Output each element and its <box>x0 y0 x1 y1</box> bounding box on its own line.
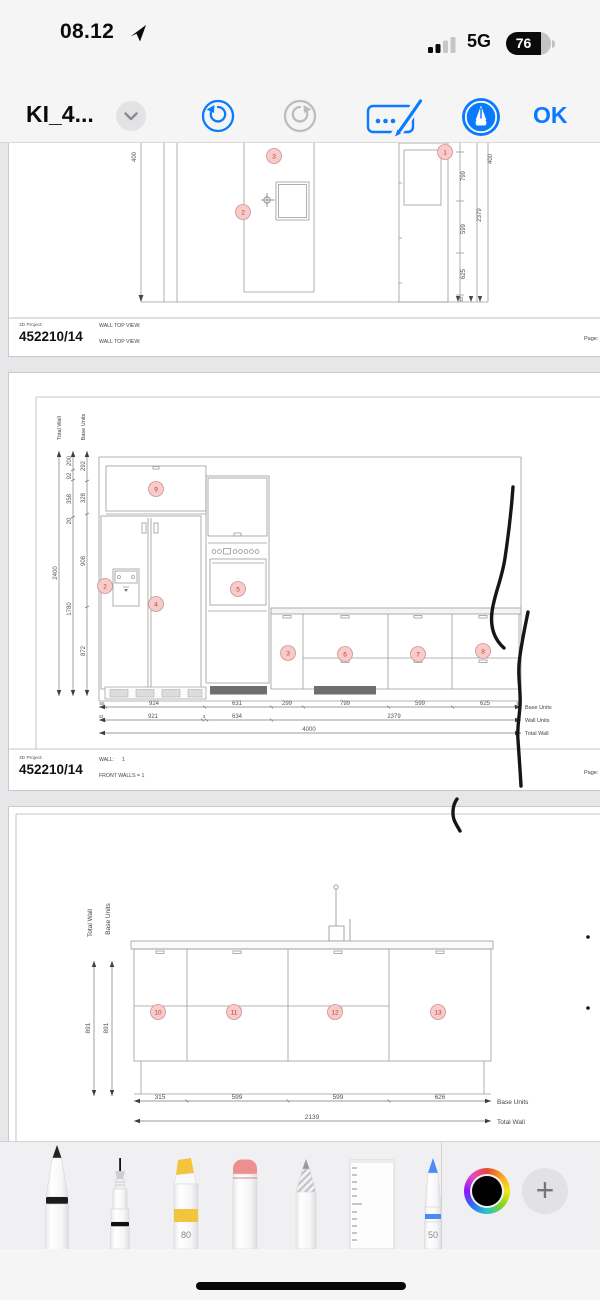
dim-label: 55 <box>99 701 105 706</box>
svg-text:7: 7 <box>416 651 420 658</box>
axis-label: Base Units <box>81 413 87 440</box>
dim-label: 358 <box>67 493 73 504</box>
faucet-symbol <box>329 885 350 941</box>
dim-label: 2379 <box>477 208 483 222</box>
dim-label: 2400 <box>53 566 59 580</box>
document-title[interactable]: KI_4... <box>26 101 94 128</box>
svg-text:1: 1 <box>122 757 125 763</box>
svg-text:11: 11 <box>231 1009 238 1016</box>
axis-label: Total Wall <box>87 908 94 936</box>
undo-button[interactable] <box>200 98 236 134</box>
location-arrow-icon <box>129 24 149 44</box>
dim-label: 4000 <box>302 727 316 733</box>
svg-text:13: 13 <box>434 1009 442 1016</box>
island-drawing: Total Wall Base Units 891 891 10 11 12 1… <box>9 807 600 1144</box>
svg-text:4: 4 <box>154 601 158 608</box>
dim-label: 92 <box>67 472 73 479</box>
item-badge-12: 12 <box>328 1005 343 1020</box>
item-badge-13: 13 <box>431 1005 446 1020</box>
front-wall-drawing: Total Wall Base Units 2400 200 92 358 20… <box>9 373 600 790</box>
dim-label: 200 <box>67 455 73 466</box>
axis-label: Base Units <box>525 705 552 711</box>
dim-label: 599 <box>333 1094 344 1101</box>
cellular-signal-icon <box>428 36 462 54</box>
dim-label: 328 <box>81 492 87 503</box>
markup-button[interactable] <box>364 95 426 139</box>
pencil-tool[interactable] <box>288 1158 324 1249</box>
eraser-tool[interactable] <box>227 1158 263 1249</box>
item-badge-2: 2 <box>236 205 251 220</box>
selected-color-swatch <box>472 1176 502 1206</box>
plus-icon: + <box>522 1172 568 1209</box>
dim-label: 634 <box>232 714 243 720</box>
axis-label: Base Units <box>105 903 112 935</box>
dim-label: 292 <box>81 460 87 471</box>
ruler-tool[interactable] <box>348 1159 396 1249</box>
redo-button[interactable] <box>282 98 318 134</box>
axis-label: Total Wall <box>497 1119 525 1126</box>
title-block: 3D Project: 452210/14 WALL TOP VIEW: WAL… <box>19 322 600 345</box>
ok-button[interactable]: OK <box>533 102 568 129</box>
svg-text:2: 2 <box>241 209 245 216</box>
plinth-vent <box>314 686 376 695</box>
home-indicator[interactable] <box>196 1282 406 1290</box>
dim-label: 52 <box>459 296 464 302</box>
svg-text:WALL TOP VIEW:: WALL TOP VIEW: <box>99 323 141 329</box>
dim-label: 625 <box>461 268 467 279</box>
item-badge-1: 1 <box>438 145 453 160</box>
dim-label: 400 <box>132 151 138 162</box>
dim-label: 1780 <box>67 602 73 616</box>
dim-label: 872 <box>81 645 87 656</box>
highlighter-tool[interactable]: 80 <box>166 1157 206 1249</box>
svg-text:3: 3 <box>286 650 290 657</box>
dim-label: 891 <box>85 1022 92 1033</box>
item-badge-11: 11 <box>227 1005 242 1020</box>
blue-pen-size-label: 50 <box>428 1230 438 1240</box>
toolbar-divider <box>441 1142 442 1249</box>
iphone-screen: 400 799 599 625 52 2379 400 3 2 1 <box>0 0 600 1300</box>
bottom-safe-area <box>0 1249 600 1300</box>
top-chrome: 08.12 5G 76 KI_4... <box>0 0 600 143</box>
svg-text:10: 10 <box>154 1009 162 1016</box>
battery-percent: 76 <box>506 35 541 51</box>
dim-label: 599 <box>232 1094 243 1101</box>
svg-text:5: 5 <box>236 586 240 593</box>
faucet-symbol <box>261 193 275 207</box>
pdf-page-7[interactable]: 400 799 599 625 52 2379 400 3 2 1 <box>8 143 600 357</box>
fineliner-tool[interactable] <box>101 1157 139 1249</box>
wall-top-view-drawing: 400 799 599 625 52 2379 400 3 2 1 <box>9 143 600 356</box>
dim-label: 299 <box>282 701 293 707</box>
dim-label: 2379 <box>387 714 401 720</box>
item-badge-2: 2 <box>98 579 113 594</box>
dim-label: 42 <box>98 714 104 719</box>
axis-label: Total Wall <box>525 731 549 737</box>
dim-label: 631 <box>232 701 243 707</box>
status-clock: 08.12 <box>60 20 114 44</box>
item-badge-3: 3 <box>267 149 282 164</box>
item-badge-9: 9 <box>149 482 164 497</box>
svg-text:9: 9 <box>154 486 158 493</box>
svg-text:12: 12 <box>331 1009 339 1016</box>
item-badge-5: 5 <box>231 582 246 597</box>
dim-label: 625 <box>480 701 491 707</box>
svg-text:3D Project:: 3D Project: <box>19 755 43 761</box>
svg-text:8: 8 <box>481 648 485 655</box>
add-tool-button[interactable]: + <box>522 1168 568 1214</box>
blue-pen-tool[interactable]: 50 <box>418 1157 441 1249</box>
svg-text:3D Project:: 3D Project: <box>19 322 43 328</box>
battery-nub <box>552 40 555 48</box>
pen-tool[interactable] <box>37 1144 77 1251</box>
oven-controls <box>212 549 259 555</box>
dim-label: 52 <box>516 701 522 706</box>
axis-label: Total Wall <box>57 416 63 440</box>
dim-label: 799 <box>340 701 351 707</box>
svg-text:1: 1 <box>443 149 447 156</box>
item-badge-3: 3 <box>281 646 296 661</box>
dim-label: 2139 <box>305 1114 320 1121</box>
svg-text:FRONT WALLS = 1: FRONT WALLS = 1 <box>99 773 145 779</box>
dim-label: 20 <box>67 517 73 524</box>
item-badge-6: 6 <box>338 647 353 662</box>
dim-label: 315 <box>155 1094 166 1101</box>
svg-text:Page: 8: Page: 8 <box>584 770 600 776</box>
svg-text:452210/14: 452210/14 <box>19 329 83 344</box>
svg-text:452210/14: 452210/14 <box>19 762 83 777</box>
pdf-page-9[interactable]: Total Wall Base Units 891 891 10 11 12 1… <box>8 806 600 1144</box>
svg-text:2: 2 <box>103 583 107 590</box>
network-type-label: 5G <box>467 31 491 52</box>
svg-text:WALL TOP VIEW:: WALL TOP VIEW: <box>99 339 141 345</box>
dim-label: 908 <box>81 555 87 566</box>
dim-label: 599 <box>461 223 467 234</box>
title-menu-button[interactable] <box>116 101 146 131</box>
svg-text:Page: 7: Page: 7 <box>584 336 600 342</box>
axis-label: Base Units <box>497 1099 529 1106</box>
dim-label: 3 <box>203 714 206 719</box>
dim-label: 924 <box>149 701 160 707</box>
dim-label: 626 <box>435 1094 446 1101</box>
dim-label: 891 <box>103 1022 110 1033</box>
dim-label: 799 <box>461 170 467 181</box>
markup-mode-toggle[interactable] <box>461 97 501 137</box>
pdf-page-8[interactable]: Total Wall Base Units 2400 200 92 358 20… <box>8 372 600 791</box>
markup-toolbar: 80 <box>0 1141 600 1250</box>
item-badge-4: 4 <box>149 597 164 612</box>
title-block: 3D Project: 452210/14 WALL: 1 FRONT WALL… <box>19 755 600 779</box>
item-badge-10: 10 <box>151 1005 166 1020</box>
axis-label: Wall Units <box>525 718 550 724</box>
dim-label: 921 <box>148 714 159 720</box>
battery-indicator: 76 <box>506 32 551 55</box>
plinth-vent <box>210 686 267 695</box>
svg-text:3: 3 <box>272 153 276 160</box>
dim-label: 400 <box>488 153 494 164</box>
dim-label: 599 <box>415 701 426 707</box>
color-picker[interactable] <box>464 1168 510 1214</box>
highlighter-size-label: 80 <box>181 1230 191 1240</box>
svg-text:6: 6 <box>343 651 347 658</box>
item-badge-8: 8 <box>476 644 491 659</box>
item-badge-7: 7 <box>411 647 426 662</box>
svg-text:WALL:: WALL: <box>99 757 114 763</box>
